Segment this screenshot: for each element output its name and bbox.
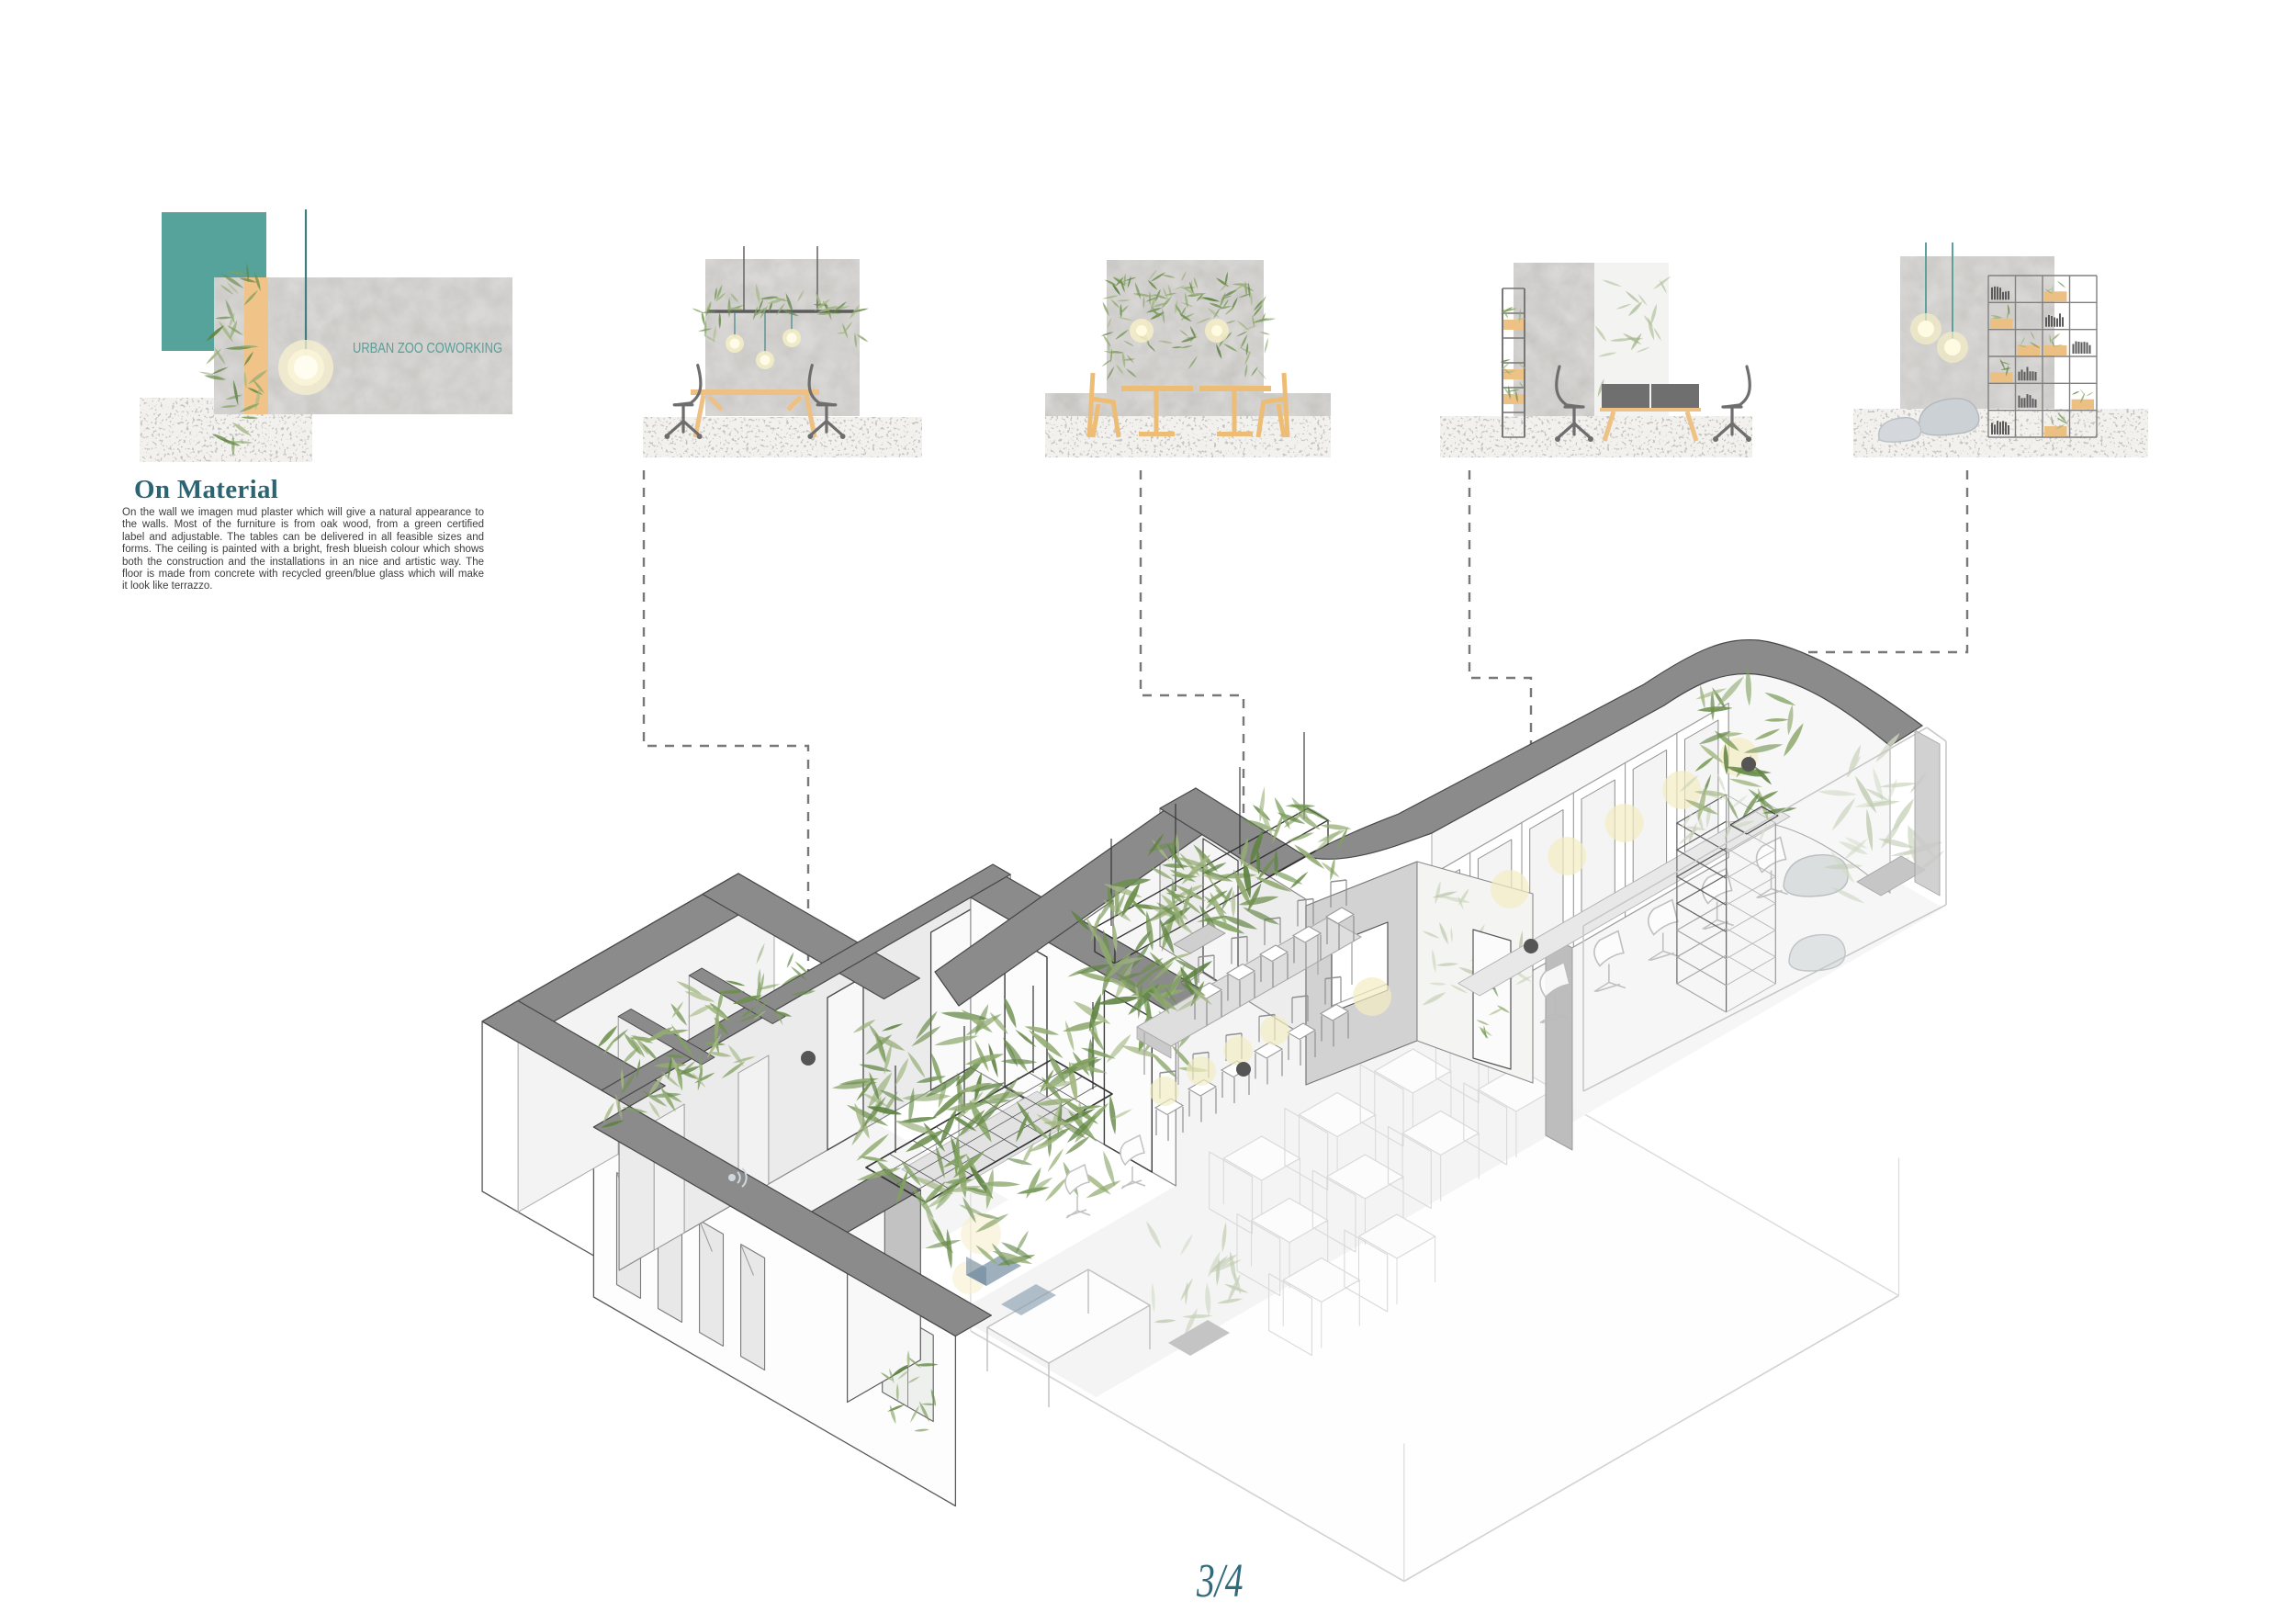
svg-text:URBAN ZOO COWORKING: URBAN ZOO COWORKING (353, 341, 502, 356)
